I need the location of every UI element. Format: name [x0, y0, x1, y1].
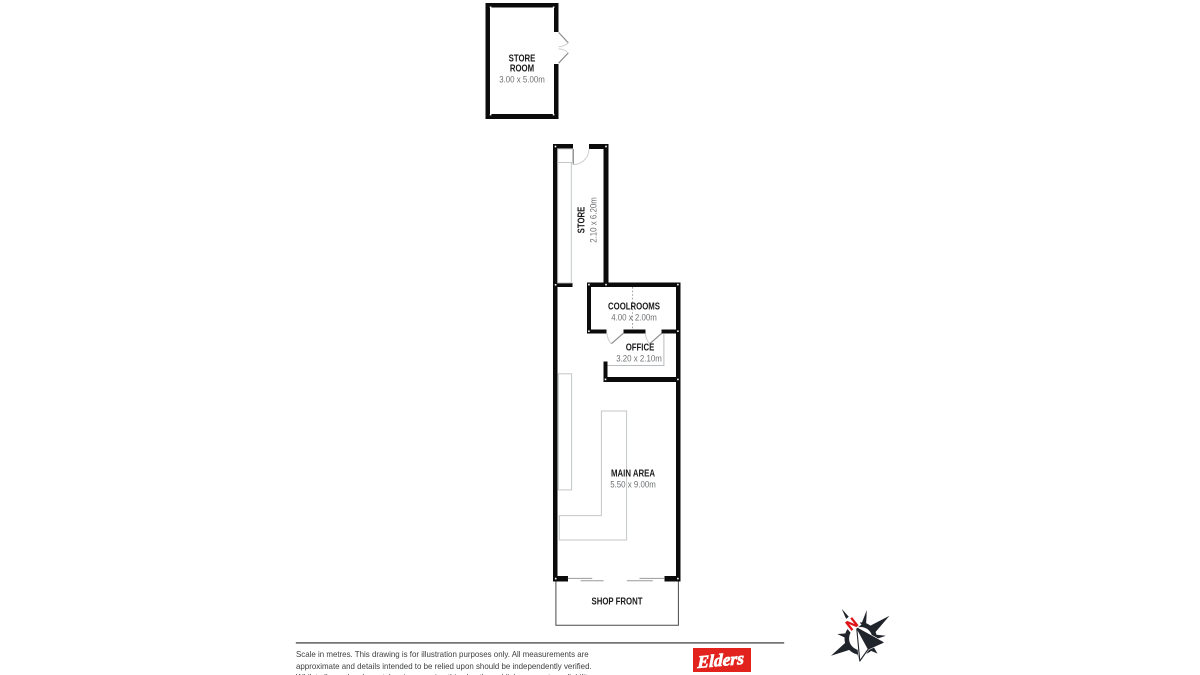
svg-text:Elders: Elders — [696, 648, 744, 672]
